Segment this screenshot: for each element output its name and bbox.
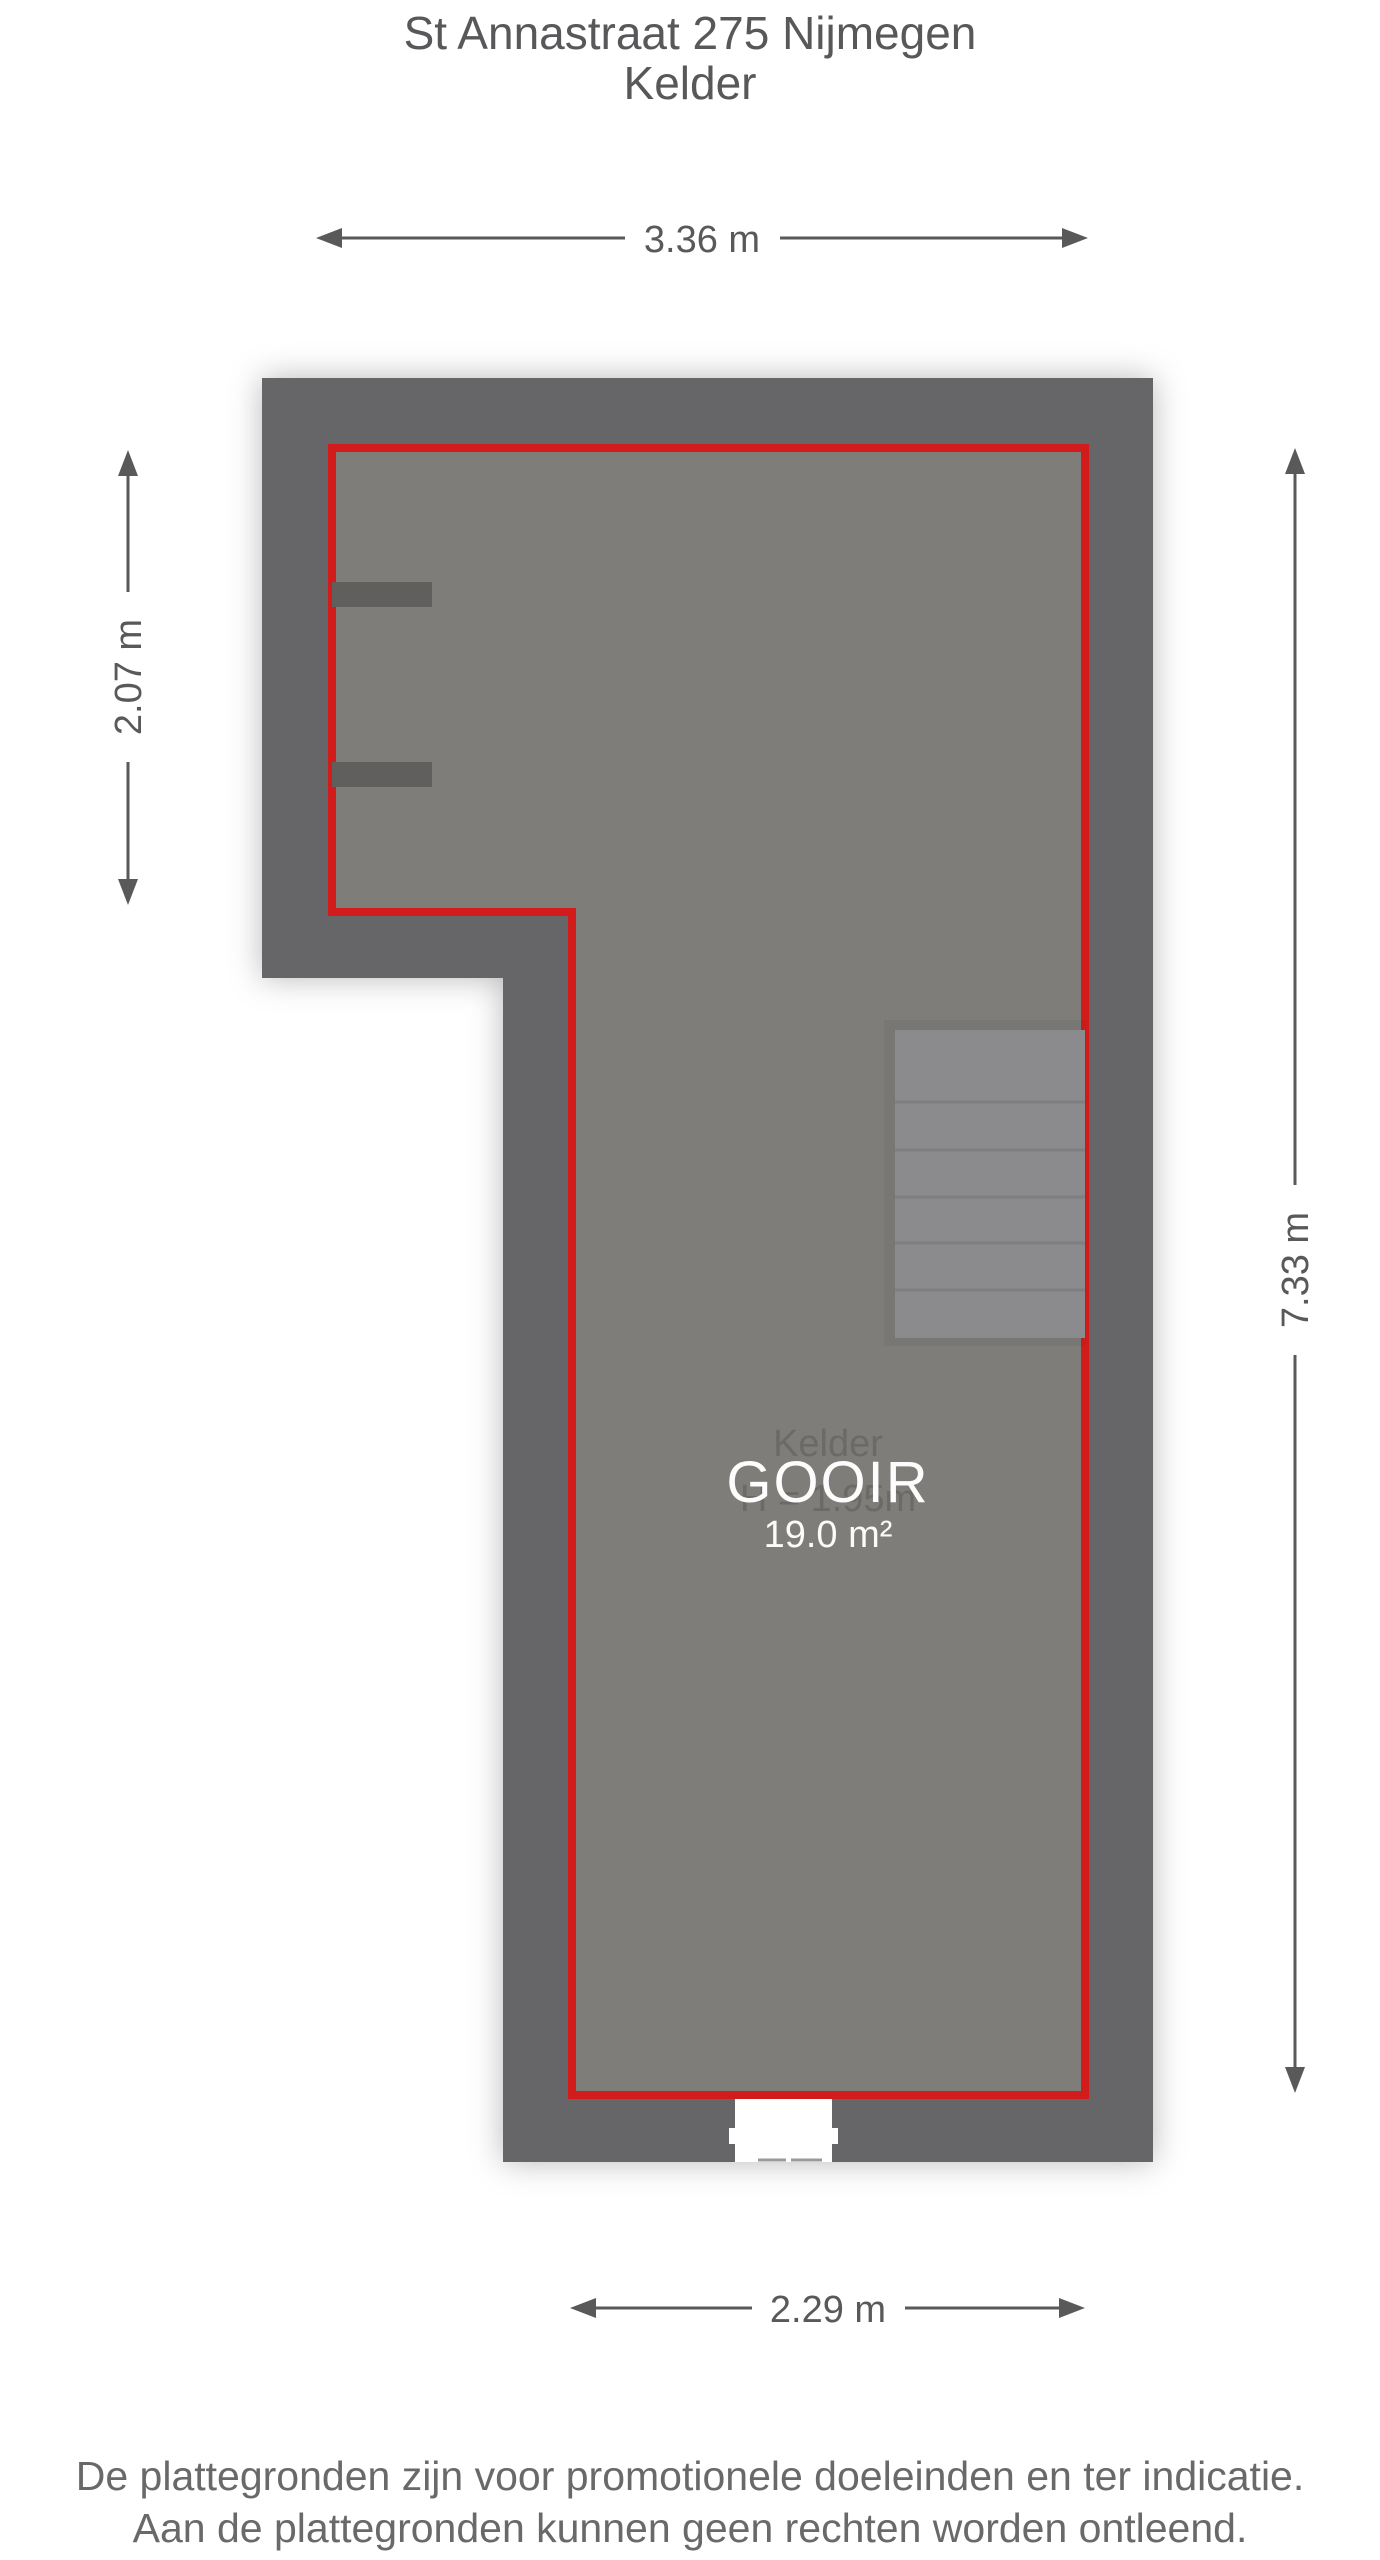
arrow-down-icon xyxy=(118,879,138,905)
dimension-left: 2.07 m xyxy=(108,450,150,905)
wall-fixture-lower xyxy=(332,762,432,787)
arrow-right-icon xyxy=(1059,2298,1085,2318)
dimension-top: 3.36 m xyxy=(316,219,1088,261)
disclaimer-line-2: Aan de plattegronden kunnen geen rechten… xyxy=(0,2502,1380,2554)
dimension-bottom: 2.29 m xyxy=(570,2289,1085,2331)
dimension-left-label: 2.07 m xyxy=(108,619,150,735)
stairs xyxy=(895,1030,1085,1338)
dimension-bottom-label: 2.29 m xyxy=(770,2289,886,2331)
arrow-down-icon xyxy=(1285,2067,1305,2093)
disclaimer-line-1: De plattegronden zijn voor promotionele … xyxy=(0,2450,1380,2502)
dimension-right: 7.33 m xyxy=(1275,448,1317,2093)
dimension-right-label: 7.33 m xyxy=(1275,1212,1317,1328)
arrow-up-icon xyxy=(1285,448,1305,474)
room-area-label: 19.0 m² xyxy=(764,1514,893,1557)
agency-watermark: GOOIR xyxy=(726,1449,929,1516)
arrow-up-icon xyxy=(118,450,138,476)
floorplan-page: St Annastraat 275 Nijmegen Kelder xyxy=(0,0,1380,2560)
floorplan-drawing: 3.36 m 2.07 m 7.33 m 2.29 m xyxy=(0,0,1380,2560)
arrow-left-icon xyxy=(570,2298,596,2318)
arrow-left-icon xyxy=(316,228,342,248)
door-opening xyxy=(729,2099,838,2162)
arrow-right-icon xyxy=(1062,228,1088,248)
dimension-top-label: 3.36 m xyxy=(644,219,760,261)
wall-fixture-upper xyxy=(332,582,432,607)
